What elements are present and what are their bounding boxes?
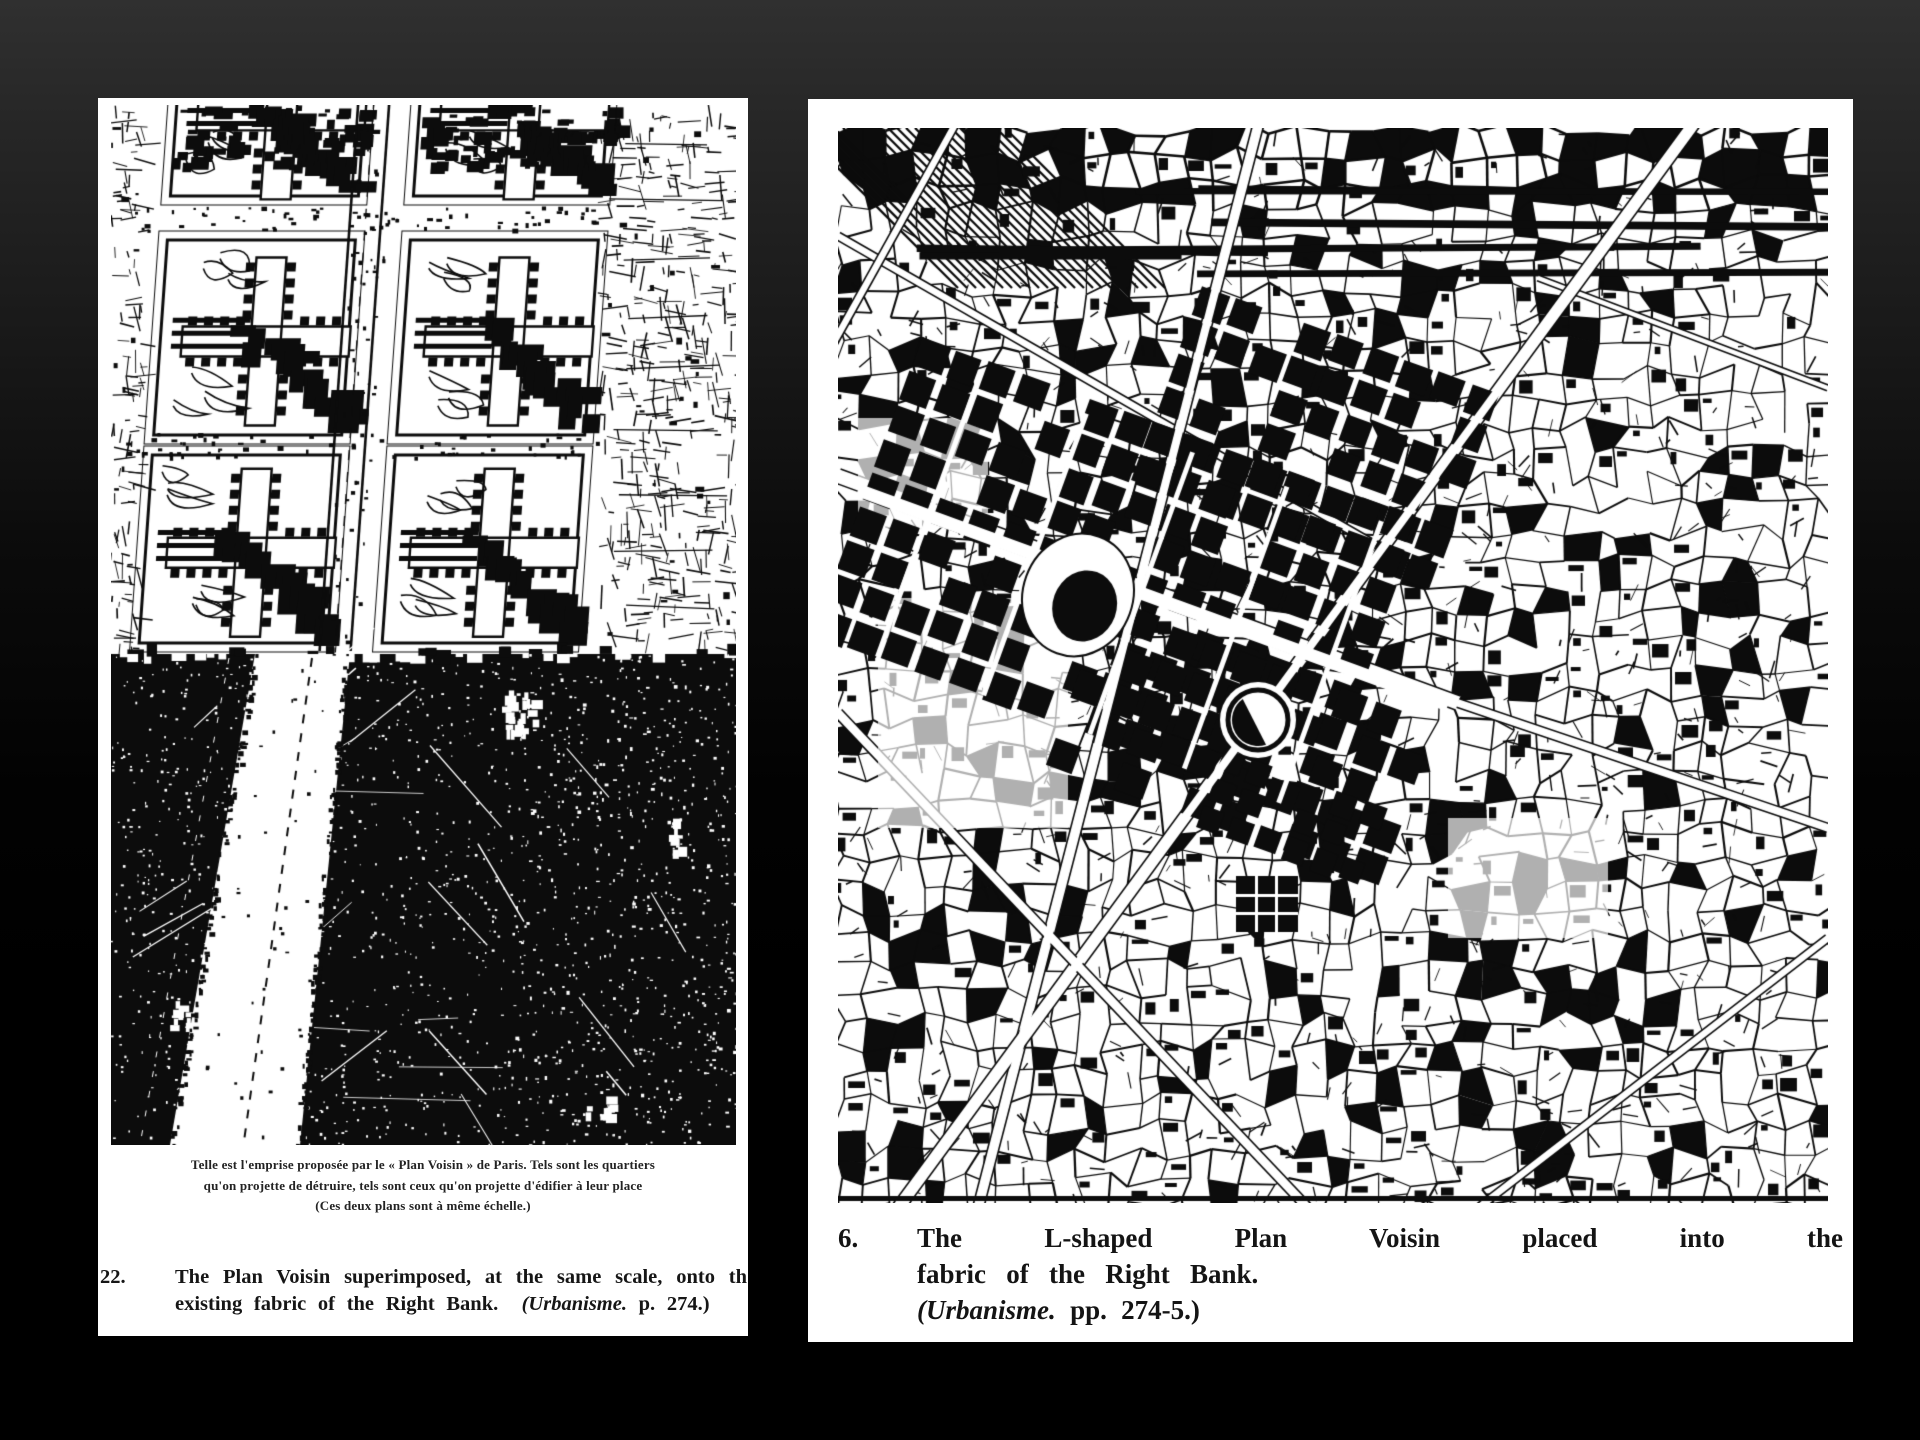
figure-caption-text: The L-shaped Plan Voisin placed into the… xyxy=(917,1220,1843,1328)
left-scanned-page: Telle est l'emprise proposée par le « Pl… xyxy=(98,98,748,1336)
figure-number: 6. xyxy=(838,1220,858,1256)
source-page: p. 274.) xyxy=(627,1293,710,1315)
source-title: (Urbanisme. xyxy=(917,1295,1056,1325)
caption-line1: The Plan Voisin superimposed, at the sam… xyxy=(175,1264,747,1291)
presentation-slide: Telle est l'emprise proposée par le « Pl… xyxy=(0,0,1920,1440)
caption-line3: (Urbanisme. pp. 274-5.) xyxy=(917,1292,1843,1328)
caption-line1: The L-shaped Plan Voisin placed into the xyxy=(917,1220,1843,1256)
source-pages: pp. 274-5.) xyxy=(1056,1295,1200,1325)
plan-voisin-aerial-montage-image xyxy=(111,105,736,1145)
french-figure-caption: Telle est l'emprise proposée par le « Pl… xyxy=(106,1155,740,1217)
french-caption-line1: Telle est l'emprise proposée par le « Pl… xyxy=(106,1155,740,1176)
french-caption-line2: qu'on projette de détruire, tels sont ce… xyxy=(106,1176,740,1197)
french-caption-line3: (Ces deux plans sont à même échelle.) xyxy=(106,1196,740,1217)
caption-line2: existing fabric of the Right Bank. (Urba… xyxy=(175,1291,747,1318)
right-scanned-page: 6. The L-shaped Plan Voisin placed into … xyxy=(808,99,1853,1342)
figure-caption-text: The Plan Voisin superimposed, at the sam… xyxy=(175,1264,747,1318)
caption-line2: fabric of the Right Bank. xyxy=(917,1256,1843,1292)
right-bank-map-image xyxy=(838,128,1828,1203)
figure-number: 22. xyxy=(100,1264,126,1291)
source-title: (Urbanisme. xyxy=(522,1293,627,1315)
